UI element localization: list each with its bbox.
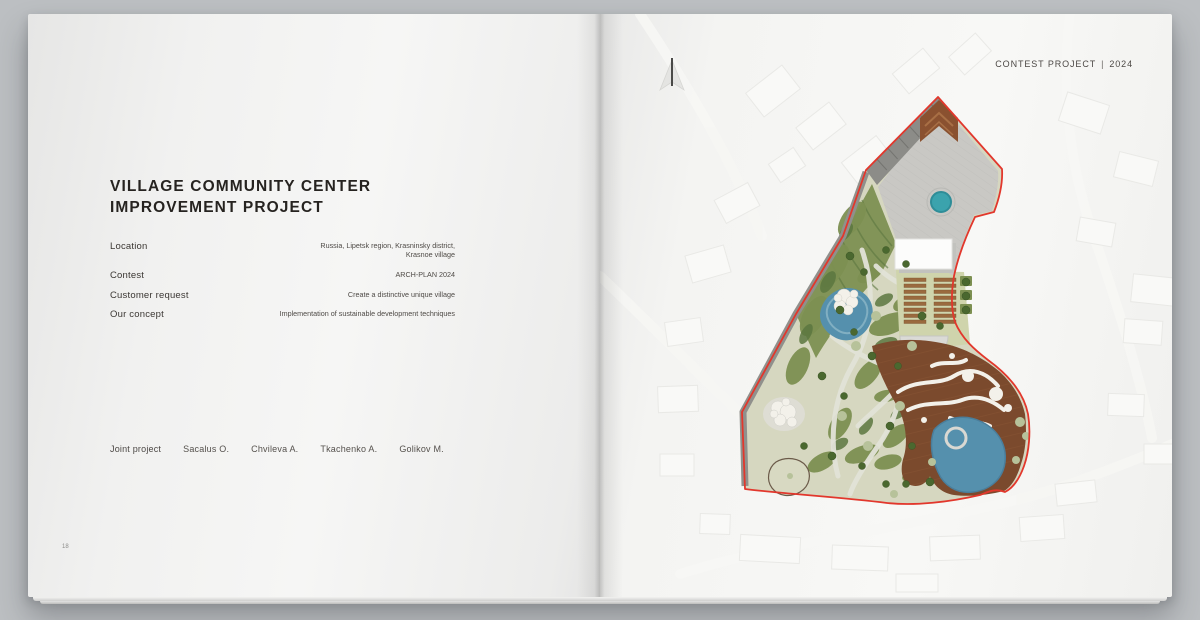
team-member: Golikov M.: [399, 444, 444, 454]
team-member: Chvileva A.: [251, 444, 298, 454]
title-line-2: IMPROVEMENT PROJECT: [110, 197, 371, 218]
page-stack-shadow: [40, 601, 1160, 604]
contest-header-divider: |: [1101, 59, 1104, 69]
team-label: Joint project: [110, 444, 161, 454]
detail-row-location: Location Russia, Lipetsk region, Krasnin…: [110, 241, 455, 259]
left-page: VILLAGE COMMUNITY CENTER IMPROVEMENT PRO…: [28, 14, 600, 597]
team-row: Joint project Sacalus O. Chvileva A. Tka…: [110, 444, 444, 454]
plaza-pond: [931, 192, 951, 212]
detail-value: ARCH-PLAN 2024: [395, 270, 455, 281]
detail-row-contest: Contest ARCH-PLAN 2024: [110, 270, 455, 281]
detail-value: Create a distinctive unique village: [348, 290, 455, 301]
contest-header: CONTEST PROJECT | 2024: [995, 59, 1133, 69]
page-title: VILLAGE COMMUNITY CENTER IMPROVEMENT PRO…: [110, 176, 371, 218]
flower-garden: [763, 397, 805, 431]
detail-value: Implementation of sustainable developmen…: [280, 309, 455, 320]
detail-value: Russia, Lipetsk region, Krasninsky distr…: [320, 241, 455, 259]
detail-label: Our concept: [110, 309, 164, 320]
masterplan-drawing: [600, 14, 1172, 597]
page-number: 18: [62, 544, 69, 550]
detail-label: Location: [110, 241, 148, 259]
portfolio-spread: VILLAGE COMMUNITY CENTER IMPROVEMENT PRO…: [28, 14, 1172, 597]
detail-label: Contest: [110, 270, 144, 281]
team-member: Sacalus O.: [183, 444, 229, 454]
right-page: CONTEST PROJECT | 2024: [600, 14, 1172, 597]
detail-row-customer-request: Customer request Create a distinctive un…: [110, 290, 455, 301]
title-line-1: VILLAGE COMMUNITY CENTER: [110, 176, 371, 197]
detail-row-our-concept: Our concept Implementation of sustainabl…: [110, 309, 455, 320]
contest-header-label: CONTEST PROJECT: [995, 59, 1096, 69]
page-stack-edge: [33, 597, 1167, 601]
contest-header-year: 2024: [1109, 59, 1133, 69]
team-member: Tkachenko A.: [320, 444, 377, 454]
detail-label: Customer request: [110, 290, 189, 301]
